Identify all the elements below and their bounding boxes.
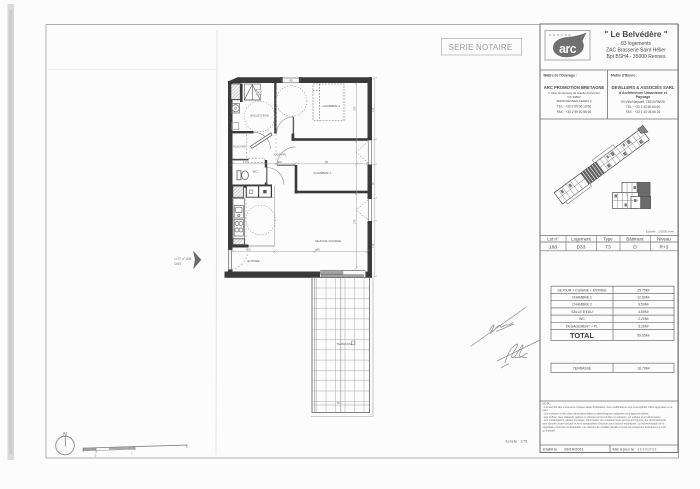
svg-text:D: D [633, 244, 637, 250]
svg-text:qu'indicatif.: qu'indicatif. [543, 428, 556, 432]
svg-text:59.85M²: 59.85M² [637, 334, 650, 338]
svg-text:136: 136 [371, 243, 375, 248]
svg-text:173: 173 [243, 160, 248, 164]
svg-text:TEL : +33 2 99 66 19 66: TEL : +33 2 99 66 19 66 [557, 104, 591, 108]
svg-text:TERRASSE: TERRASSE [337, 342, 353, 346]
svg-text:DS9: DS9 [175, 262, 182, 266]
svg-text:Bpt BSH4 - 35000 Rennes: Bpt BSH4 - 35000 Rennes [607, 54, 666, 60]
svg-text:Niveau: Niveau [657, 237, 671, 242]
svg-text:Logement: Logement [571, 237, 591, 242]
svg-text:FAX : +33 1 43 06 66 26: FAX : +33 1 43 06 66 26 [626, 110, 661, 114]
svg-text:d'Architecture Urbanisme et: d'Architecture Urbanisme et [619, 91, 668, 95]
svg-text:CHAMBRE 1: CHAMBRE 1 [323, 104, 341, 108]
svg-text:D33: D33 [577, 244, 586, 250]
svg-text:Maître d'Œuvre :: Maître d'Œuvre : [611, 74, 637, 78]
svg-text:DGT+PL: DGT+PL [275, 152, 287, 156]
svg-text:- Les surfaces et les côtes (d: - Les surfaces et les côtes (dimensionne… [543, 411, 650, 415]
svg-text:168: 168 [549, 244, 557, 250]
svg-text:Lot n°: Lot n° [547, 237, 559, 242]
svg-text:Maître de l'Ouvrage :: Maître de l'Ouvrage : [544, 74, 577, 78]
svg-text:28/10/2011: 28/10/2011 [564, 446, 584, 451]
svg-text:- Les coffres, faux-plafonds,: - Les coffres, faux-plafonds, gaines ou … [543, 415, 662, 419]
svg-text:83 logements: 83 logements [621, 41, 652, 47]
svg-text:Bâtiment: Bâtiment [626, 237, 644, 242]
svg-text:5.20M²: 5.20M² [638, 324, 649, 328]
svg-text:Etabli le :: Etabli le : [543, 446, 559, 451]
svg-text:SEJOUR+CUISINE: SEJOUR+CUISINE [315, 239, 341, 243]
svg-text:ENTREE: ENTREE [248, 259, 260, 263]
svg-text:R+3: R+3 [660, 244, 669, 250]
svg-text:275: 275 [353, 106, 357, 111]
svg-text:60: 60 [289, 78, 293, 82]
svg-text:446: 446 [315, 248, 320, 252]
svg-text:302: 302 [246, 248, 251, 252]
svg-text:- L'ensemble des mesures le ch: - L'ensemble des mesures le chaque détai… [543, 405, 673, 409]
svg-text:LOT n°168: LOT n°168 [175, 257, 191, 261]
svg-text:Mis à jour le :: Mis à jour le : [613, 446, 637, 451]
svg-text:WC: WC [253, 170, 259, 174]
svg-text:93 Villa Niepceff, 75013 PARIS: 93 Villa Niepceff, 75013 PARIS [621, 100, 665, 104]
svg-text:4.60M²: 4.60M² [638, 310, 649, 314]
svg-text:SERIE NOTAIRE: SERIE NOTAIRE [449, 43, 513, 52]
svg-text:Echelle : 1/75: Echelle : 1/75 [506, 439, 528, 443]
svg-text:PLACARD: PLACARD [233, 145, 246, 149]
svg-text:arc: arc [559, 42, 577, 56]
svg-text:Paysage: Paysage [636, 95, 651, 99]
svg-text:35208 RENNES CEDEX 2: 35208 RENNES CEDEX 2 [556, 99, 592, 103]
svg-text:Type: Type [603, 237, 613, 242]
svg-text:CHAMBRE 2: CHAMBRE 2 [572, 303, 592, 307]
svg-text:275: 275 [353, 219, 357, 224]
svg-text:DEGAGEMENT + PL: DEGAGEMENT + PL [566, 324, 598, 328]
svg-text:2.20M²: 2.20M² [638, 317, 649, 321]
svg-text:SALLE D'EAU: SALLE D'EAU [250, 113, 269, 117]
svg-text:90: 90 [257, 91, 261, 95]
svg-text:16.70M²: 16.70M² [637, 366, 650, 370]
svg-text:" Le Belvédère ": " Le Belvédère " [604, 30, 667, 39]
svg-text:122: 122 [371, 107, 375, 112]
svg-text:110: 110 [278, 160, 283, 164]
svg-text:70: 70 [337, 401, 341, 405]
svg-text:NOTA :: NOTA : [543, 402, 552, 406]
svg-text:TEL : +33 1 43 65 64 64: TEL : +33 1 43 65 64 64 [626, 105, 660, 109]
svg-text:GROUPE: GROUPE [549, 33, 572, 37]
svg-text:CHAMBRE 1: CHAMBRE 1 [572, 296, 592, 300]
svg-text:Echelle : 1/2000 ème: Echelle : 1/2000 ème [646, 230, 675, 234]
svg-text:0: 0 [95, 453, 97, 457]
svg-text:- Les canalisations, gaines ou: - Les canalisations, gaines ou buses, co… [543, 418, 667, 422]
svg-text:TERRASSE: TERRASSE [573, 366, 592, 370]
svg-text:12.60M²: 12.60M² [637, 296, 650, 300]
svg-text:T3: T3 [605, 244, 611, 250]
svg-text:31/10/2011: 31/10/2011 [637, 446, 657, 451]
svg-text:TOTAL: TOTAL [570, 331, 594, 340]
svg-text:SALLE D'EAU: SALLE D'EAU [571, 310, 593, 314]
svg-text:94: 94 [325, 160, 329, 164]
svg-text:sont donnés à titre indicatif: sont donnés à titre indicatif et sont su… [543, 422, 665, 426]
svg-text:ZAC Brasserie Saint Hélier: ZAC Brasserie Saint Hélier [606, 48, 666, 54]
svg-text:végétation n'est pas contractu: végétation n'est pas contractuelle. Les … [543, 425, 667, 429]
svg-text:plan: plan [543, 408, 548, 412]
svg-text:ARC PROMOTION BRETAGNE: ARC PROMOTION BRETAGNE [544, 85, 605, 90]
svg-text:2: 2 [131, 451, 133, 455]
svg-text:9.50M²: 9.50M² [638, 303, 649, 307]
svg-text:N: N [63, 432, 67, 438]
svg-text:25.75M²: 25.75M² [637, 288, 650, 292]
svg-text:WC: WC [579, 317, 585, 321]
svg-text:SEJOUR + CUISINE + ENTREE: SEJOUR + CUISINE + ENTREE [558, 288, 608, 292]
svg-text:FAX : +33 2 99 50 56 66: FAX : +33 2 99 50 56 66 [557, 110, 592, 114]
svg-text:CHAMBRE 2: CHAMBRE 2 [314, 171, 332, 175]
svg-text:DEVILLERS & ASSOCIÉS SARL: DEVILLERS & ASSOCIÉS SARL [612, 85, 675, 90]
